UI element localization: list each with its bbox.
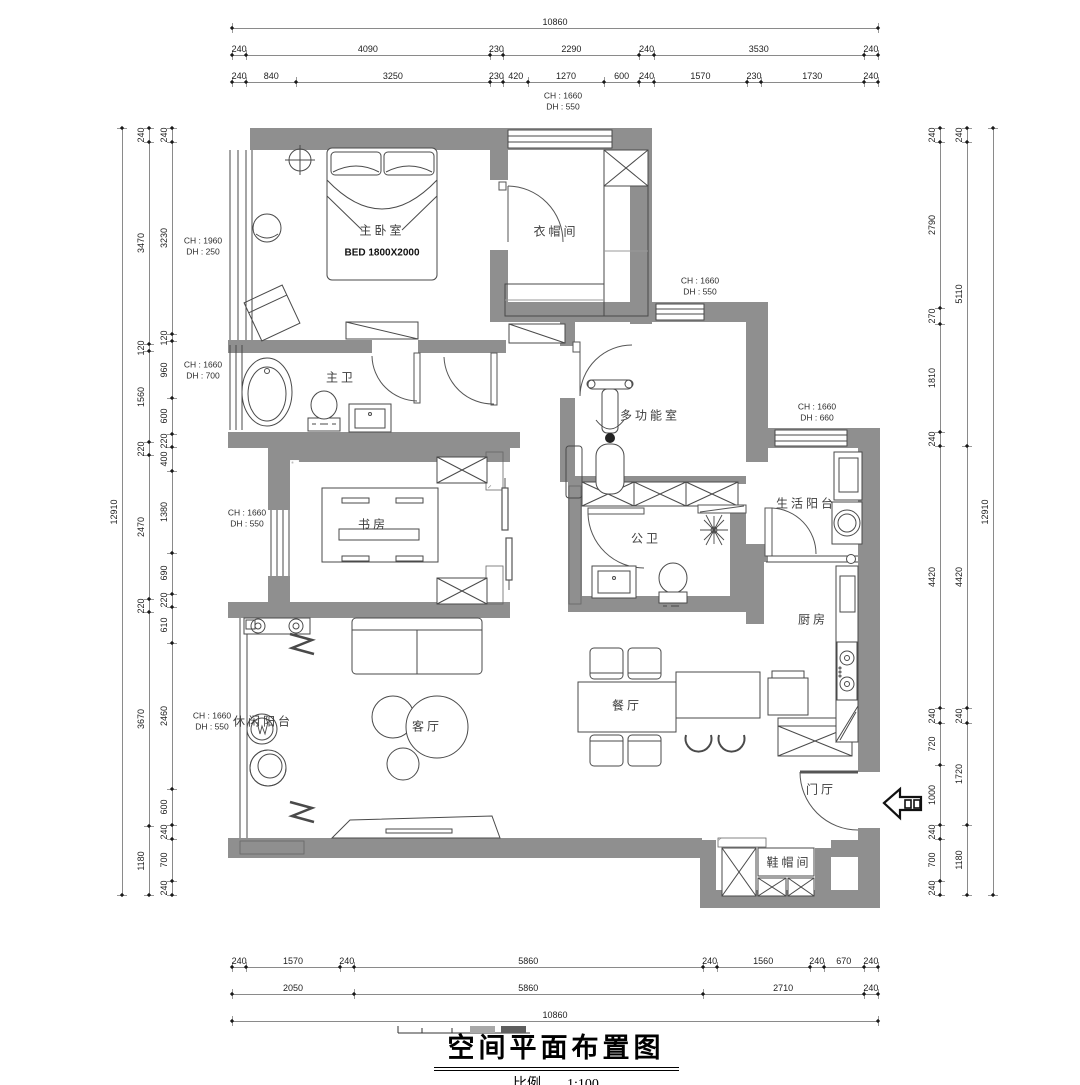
coffee-tables (372, 696, 468, 780)
dim-right-col2-value: 5110 (954, 284, 964, 303)
dim-top-row2 (232, 55, 878, 56)
dim-top-row2-value: 240 (863, 44, 878, 54)
dim-bottom-row1-value: 240 (863, 956, 878, 966)
dim-left-col3-value: 240 (159, 825, 169, 840)
dim-left-col3-value: 2460 (159, 706, 169, 726)
dim-left-col2-value: 1560 (136, 387, 146, 407)
dim-top-row3 (232, 82, 878, 83)
ann-multi-window: CH : 1660DH : 550 (681, 276, 719, 299)
dim-right-col1-value: 720 (927, 737, 937, 752)
room-label-study: 书房 (358, 516, 388, 533)
dim-top-row3-value: 1730 (802, 71, 822, 81)
dim-right-col2-value: 4420 (954, 567, 964, 587)
dim-top-row3-value: 600 (614, 71, 629, 81)
room-label-shoe-room: 鞋帽间 (766, 854, 811, 871)
room-label-multi-function: 多功能室 (620, 407, 680, 424)
dim-left-overall (122, 128, 123, 895)
dim-left-col2-value: 220 (136, 441, 146, 456)
dim-left-col2-value: 240 (136, 127, 146, 142)
dim-left-col3-value: 610 (159, 617, 169, 632)
floor-plan-page: 空间平面布置图 比例1:100 主卧室衣帽间主卫书房多功能室公卫生活阳台厨房餐厅… (0, 0, 1080, 1085)
room-label-cloakroom: 衣帽间 (533, 223, 578, 240)
dim-top-row3-value: 1270 (556, 71, 576, 81)
dim-top-row3-value: 420 (508, 71, 523, 81)
dim-right-col2-value: 240 (954, 708, 964, 723)
dim-left-col2-value: 2470 (136, 517, 146, 537)
ann-service-window: CH : 1660DH : 660 (798, 402, 836, 425)
ann-top-window: CH : 1660DH : 550 (544, 91, 582, 114)
dim-right-overall (993, 128, 994, 895)
dim-top-row3-value: 1570 (690, 71, 710, 81)
ann-study-window: CH : 1660DH : 550 (228, 508, 266, 531)
dim-left-col3-value: 120 (159, 330, 169, 345)
kitchen-counter (836, 566, 858, 742)
dim-top-row3-value: 230 (746, 71, 761, 81)
dim-right-col1-value: 240 (927, 431, 937, 446)
dim-left-col2 (149, 128, 150, 895)
dim-right-col1-value: 1000 (927, 785, 937, 805)
dim-bottom-row1-value: 240 (702, 956, 717, 966)
dim-bottom-row1-value: 240 (232, 956, 247, 966)
dim-right-overall-value: 12910 (980, 499, 990, 524)
dim-right-col1-value: 700 (927, 852, 937, 867)
dim-top-row2-value: 3530 (749, 44, 769, 54)
dresser-icon (346, 322, 565, 343)
dim-bottom-row2-value: 5860 (518, 983, 538, 993)
dim-left-col2-value: 220 (136, 598, 146, 613)
dim-left-col3-value: 690 (159, 566, 169, 581)
dim-bottom-row1-value: 240 (339, 956, 354, 966)
sink-icon (349, 404, 391, 432)
dim-bottom-overall (232, 1021, 878, 1022)
dim-top-row2-value: 4090 (358, 44, 378, 54)
bathtub-icon (242, 358, 292, 426)
room-label-leisure-balcony: 休闲阳台 (233, 713, 293, 730)
dim-left-col2-value: 120 (136, 340, 146, 355)
dim-top-overall-value: 10860 (542, 17, 567, 27)
dim-top-row2-value: 240 (232, 44, 247, 54)
title-block: 空间平面布置图 比例1:100 (395, 1026, 717, 1085)
dim-left-col3-value: 1380 (159, 502, 169, 522)
room-label-guest-bath: 公卫 (631, 530, 661, 547)
entrance-arrow-icon (884, 789, 921, 818)
dim-right-col1-value: 2790 (927, 215, 937, 235)
dim-right-col2 (967, 128, 968, 895)
scale-row: 比例1:100 (487, 1073, 625, 1085)
dim-left-col3 (172, 128, 173, 895)
toilet-icon (308, 391, 340, 431)
tv-cabinet-icon (332, 816, 500, 838)
dim-right-col1-value: 240 (927, 128, 937, 143)
dim-top-row3-value: 230 (489, 71, 504, 81)
dim-right-col2-value: 1180 (954, 850, 964, 869)
dim-right-col1-value: 240 (927, 708, 937, 723)
dim-bottom-row2 (232, 994, 878, 995)
room-label-dining: 餐厅 (612, 697, 642, 714)
dim-left-col3-value: 220 (159, 433, 169, 448)
room-label-master-bedroom: 主卧室 (359, 222, 404, 239)
dim-bottom-overall-value: 10860 (542, 1010, 567, 1020)
bed-size-note: BED 1800X2000 (344, 248, 419, 259)
dim-top-row3-value: 840 (264, 71, 279, 81)
dim-right-col2-value: 240 (954, 128, 964, 143)
ann-bedroom-window: CH : 1960DH : 250 (184, 236, 222, 259)
dim-left-col3-value: 960 (159, 362, 169, 377)
dim-top-row2-value: 230 (489, 44, 504, 54)
plan-title: 空间平面布置图 (434, 1026, 679, 1071)
dim-bottom-row1 (232, 967, 878, 968)
dim-left-col3-value: 600 (159, 800, 169, 815)
dim-left-col3-value: 600 (159, 409, 169, 424)
dim-bottom-row1-value: 670 (836, 956, 851, 966)
bed-icon (327, 148, 437, 280)
dim-left-col2-value: 3670 (136, 709, 146, 729)
dim-top-row3-value: 240 (232, 71, 247, 81)
dim-bottom-row2-value: 2050 (283, 983, 303, 993)
dim-top-row3-value: 240 (863, 71, 878, 81)
dim-bottom-row1-value: 240 (809, 956, 824, 966)
dim-left-col3-value: 240 (159, 880, 169, 895)
dim-top-row3-value: 240 (639, 71, 654, 81)
dim-bottom-row1-value: 5860 (518, 956, 538, 966)
dim-top-row2-value: 240 (639, 44, 654, 54)
dim-left-col3-value: 220 (159, 593, 169, 608)
dim-bottom-row2-value: 2710 (773, 983, 793, 993)
dim-bottom-row1-value: 1560 (753, 956, 773, 966)
dim-right-col1-value: 240 (927, 880, 937, 895)
dim-left-col2-value: 1180 (136, 851, 146, 870)
dim-left-col2-value: 3470 (136, 233, 146, 253)
dim-top-overall (232, 28, 878, 29)
room-label-foyer: 门厅 (806, 781, 836, 798)
dim-right-col2-value: 1720 (954, 764, 964, 784)
ann-leisure-window: CH : 1660DH : 550 (193, 711, 231, 734)
room-label-kitchen: 厨房 (798, 611, 828, 628)
dim-left-col3-value: 3230 (159, 228, 169, 248)
dim-bottom-row2-value: 240 (863, 983, 878, 993)
room-label-master-bath: 主卫 (326, 369, 356, 386)
scale-label: 比例 (513, 1077, 541, 1085)
dim-left-col3-value: 700 (159, 852, 169, 867)
dim-right-col1-value: 4420 (927, 567, 937, 587)
dim-right-col1 (940, 128, 941, 895)
dim-right-col1-value: 1810 (927, 368, 937, 388)
ann-masterbath-window: CH : 1660DH : 700 (184, 360, 222, 383)
sofa-icon (352, 618, 482, 674)
scale-value: 1:100 (567, 1077, 599, 1085)
dim-top-row2-value: 2290 (561, 44, 581, 54)
dim-left-col3-value: 240 (159, 128, 169, 143)
dim-top-row3-value: 3250 (383, 71, 403, 81)
dim-right-col1-value: 270 (927, 309, 937, 324)
dim-left-overall-value: 12910 (109, 499, 119, 524)
dim-right-col1-value: 240 (927, 825, 937, 840)
dim-left-col3-value: 400 (159, 451, 169, 466)
room-label-living: 客厅 (412, 718, 442, 735)
room-label-service-balcony: 生活阳台 (776, 495, 836, 512)
dim-bottom-row1-value: 1570 (283, 956, 303, 966)
floor-plan-drawing (0, 0, 1080, 1085)
